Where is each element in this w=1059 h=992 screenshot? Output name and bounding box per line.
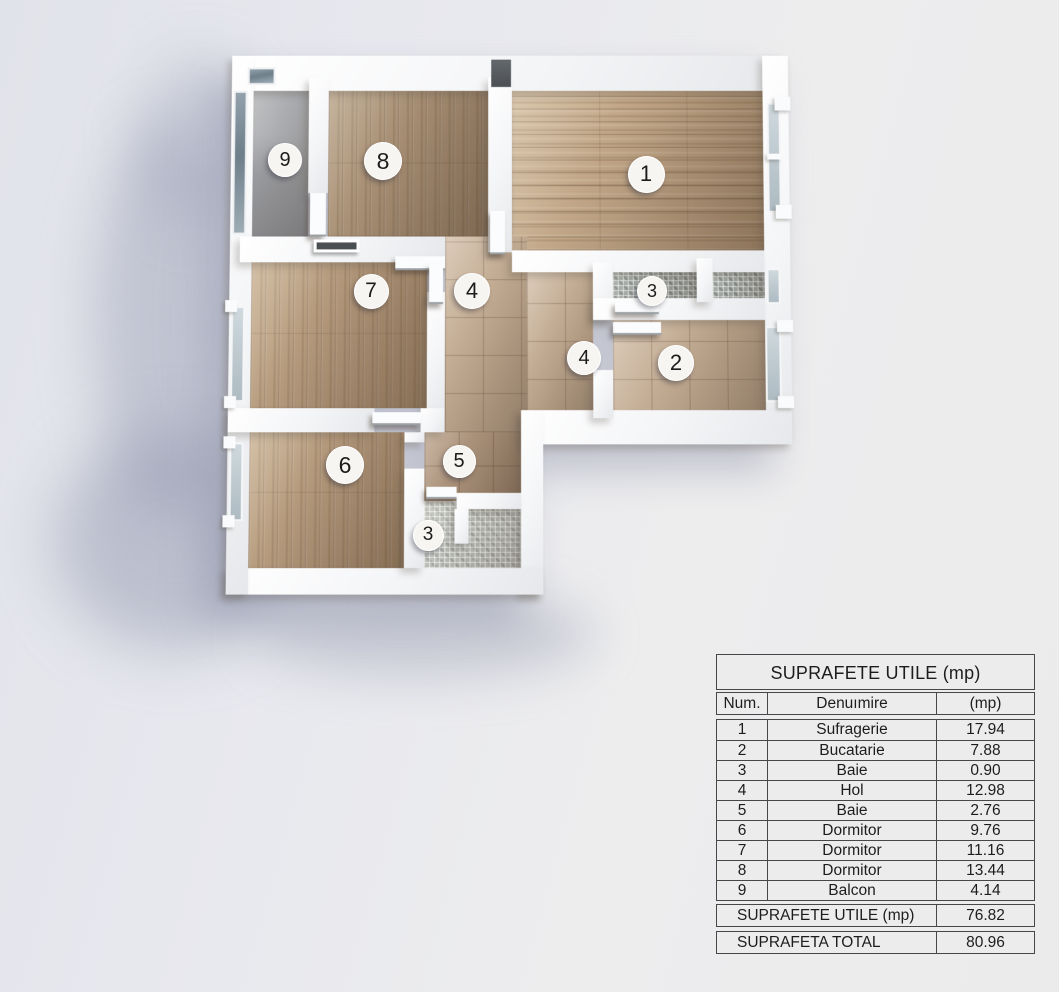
wall-room6-hall5-jamb <box>404 432 424 442</box>
room-area: 4.14 <box>936 880 1034 900</box>
row-num: 7 <box>717 840 767 860</box>
area-table: SUPRAFETE UTILE (mp) Num. Denuımire (mp)… <box>716 654 1035 958</box>
livingroom1-floor <box>512 89 764 250</box>
hall4-leg-floor <box>527 272 593 418</box>
balcony-corner-window <box>248 67 276 85</box>
window-sill <box>225 300 237 312</box>
door-leaf-hall <box>429 264 443 304</box>
room-area: 0.90 <box>936 760 1034 780</box>
bedroom6-window <box>229 442 244 521</box>
room-area: 2.76 <box>936 800 1034 820</box>
table-row: 5Baie2.76 <box>717 800 1034 820</box>
room-name: Baie <box>767 760 936 780</box>
room-name: Balcon <box>767 880 936 900</box>
page: 98174342653 SUPRAFETE UTILE (mp) Num. De… <box>0 0 1059 992</box>
window-sill <box>774 97 790 111</box>
room-area: 11.16 <box>936 840 1034 860</box>
row-num: 5 <box>717 800 767 820</box>
header-denumire: Denuımire <box>767 693 936 714</box>
table-row: 4Hol12.98 <box>717 780 1034 800</box>
room-name: Bucatarie <box>767 740 936 760</box>
wall-bottom <box>226 568 544 595</box>
door-leaf-hall5 <box>372 412 420 425</box>
window-sill <box>224 396 236 408</box>
total-utile-value: 76.82 <box>936 905 1034 926</box>
door-leaf-bath3b <box>426 487 456 499</box>
cast-shadow <box>255 592 595 677</box>
room-name: Dormitor <box>767 860 936 880</box>
table-total-utile: SUPRAFETE UTILE (mp) 76.82 <box>716 904 1035 927</box>
door-leaf-balcony <box>310 193 326 236</box>
wall-balcony-divider <box>308 77 329 193</box>
wall-kitchen-bottom <box>521 410 792 444</box>
bedroom7-window <box>230 306 245 402</box>
table-row: 1Sufragerie17.94 <box>717 720 1034 740</box>
wall-room6-hall5 <box>404 469 425 568</box>
total-utile-label: SUPRAFETE UTILE (mp) <box>717 905 936 926</box>
room-name: Hol <box>767 780 936 800</box>
room-name: Baie <box>767 800 936 820</box>
header-mp: (mp) <box>936 693 1034 714</box>
window-mullion <box>767 154 781 160</box>
row-num: 8 <box>717 860 767 880</box>
wall-room1-bottom <box>512 250 764 272</box>
window-sill <box>777 320 793 332</box>
row-num: 6 <box>717 820 767 840</box>
bedroom7-floor <box>250 262 427 408</box>
row-num: 1 <box>717 720 767 740</box>
room-name: Dormitor <box>767 840 936 860</box>
door-leaf-kitchen <box>613 322 661 335</box>
header-num: Num. <box>717 693 767 714</box>
room-area: 13.44 <box>936 860 1034 880</box>
wall-step-right <box>521 410 543 594</box>
bedroom8-floor <box>328 89 489 237</box>
table-title: SUPRAFETE UTILE (mp) <box>716 654 1035 690</box>
row-num: 9 <box>717 880 767 900</box>
balcony-glazing <box>232 91 248 235</box>
door-leaf-bath3 <box>615 302 659 314</box>
table-total-overall: SUPRAFETA TOTAL 80.96 <box>716 931 1035 954</box>
row-num: 2 <box>717 740 767 760</box>
room-name: Sufragerie <box>767 720 936 740</box>
floor-plan <box>221 44 803 603</box>
window-sill <box>776 205 792 219</box>
total-overall-label: SUPRAFETA TOTAL <box>717 932 936 953</box>
wall-bath3b-stub <box>454 509 468 544</box>
wall-room7-bottom-a <box>228 408 375 432</box>
room-area: 12.98 <box>936 780 1034 800</box>
room-area: 9.76 <box>936 820 1034 840</box>
window-sill <box>778 396 794 408</box>
bedroom6-floor <box>248 432 404 568</box>
bathroom3-window <box>766 268 780 304</box>
table-body: 1Sufragerie17.942Bucatarie7.883Baie0.904… <box>716 719 1035 901</box>
window-sill <box>222 515 234 527</box>
vent-shaft <box>491 60 511 87</box>
table-header: Num. Denuımire (mp) <box>716 692 1035 715</box>
table-row: 2Bucatarie7.88 <box>717 740 1034 760</box>
room-name: Dormitor <box>767 820 936 840</box>
kitchen-window <box>765 326 782 402</box>
table-row: 9Balcon4.14 <box>717 880 1034 900</box>
wall-room7-bottom-b <box>421 408 445 432</box>
wall-hall5-bath <box>457 493 522 509</box>
row-num: 3 <box>717 760 767 780</box>
total-overall-value: 80.96 <box>936 932 1034 953</box>
bathroom3b-floor <box>424 501 521 568</box>
radiator <box>314 239 360 252</box>
window-sill <box>223 436 235 448</box>
room-area: 7.88 <box>936 740 1034 760</box>
wall-bath3-stub <box>697 258 713 302</box>
table-row: 6Dormitor9.76 <box>717 820 1034 840</box>
row-num: 4 <box>717 780 767 800</box>
table-row: 8Dormitor13.44 <box>717 860 1034 880</box>
balcony-floor <box>250 89 309 237</box>
table-row: 3Baie0.90 <box>717 760 1034 780</box>
room-area: 17.94 <box>936 720 1034 740</box>
table-row: 7Dormitor11.16 <box>717 840 1034 860</box>
wall-room7-hall <box>427 292 445 412</box>
wall-hall-kitchen-bot <box>593 370 613 418</box>
door-leaf-living <box>490 211 505 255</box>
